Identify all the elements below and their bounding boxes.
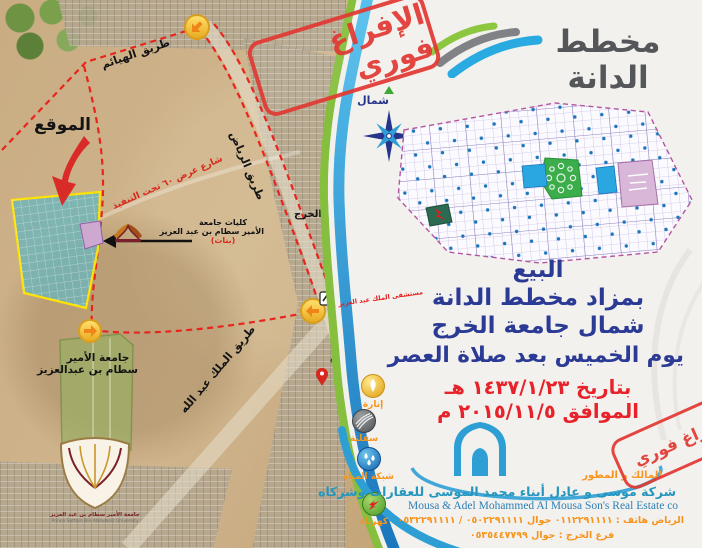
plat-pink-parcel: [618, 160, 658, 207]
subdivision-plan: [390, 92, 702, 272]
lighting-icon: [360, 373, 386, 399]
asphalt-icon: [351, 408, 377, 434]
arch-icon: [454, 422, 506, 476]
announce-line2: بمزاد مخطط الدانة: [392, 284, 684, 312]
water-network-icon: [356, 446, 382, 472]
auction-announcement: البيع بمزاد مخطط الدانة شمال جامعة الخرج…: [392, 256, 684, 424]
plat-facility-2: [596, 166, 617, 194]
phone-riyadh: الرياض هاتف : ٠١١٢٢٩١١١١ جوال ٠٥٠٢٢٩١١١١…: [400, 515, 684, 526]
asphalt-label: سفلتة: [343, 434, 385, 444]
water-network-label: شبكة المياه: [344, 472, 394, 482]
announce-date-hijri: بتاريخ ١٤٣٧/١/٢٣ هـ: [392, 376, 684, 400]
announce-line1: البيع: [392, 256, 684, 284]
brand-name: مخطط الدانة: [518, 24, 698, 96]
auction-flyer: الموقع طريق الهيائم طريق الرياض شارع عرض…: [0, 0, 702, 548]
phone-kharj: فرع الخرج : جوال ٠٥٣٥٤٤٧٧٩٩: [400, 530, 684, 541]
electricity-label: كهرباء: [353, 517, 395, 527]
compass-north-label: شمال: [356, 94, 390, 107]
company-name-en: Mousa & Adel Mohammed Al Mousa Son's Rea…: [408, 500, 676, 512]
plat-facility-1: [522, 164, 547, 188]
announce-line3: شمال جامعة الخرج: [392, 312, 684, 340]
announce-line4: يوم الخميس بعد صلاة العصر: [392, 340, 684, 371]
plat-electric-station: [426, 204, 452, 226]
